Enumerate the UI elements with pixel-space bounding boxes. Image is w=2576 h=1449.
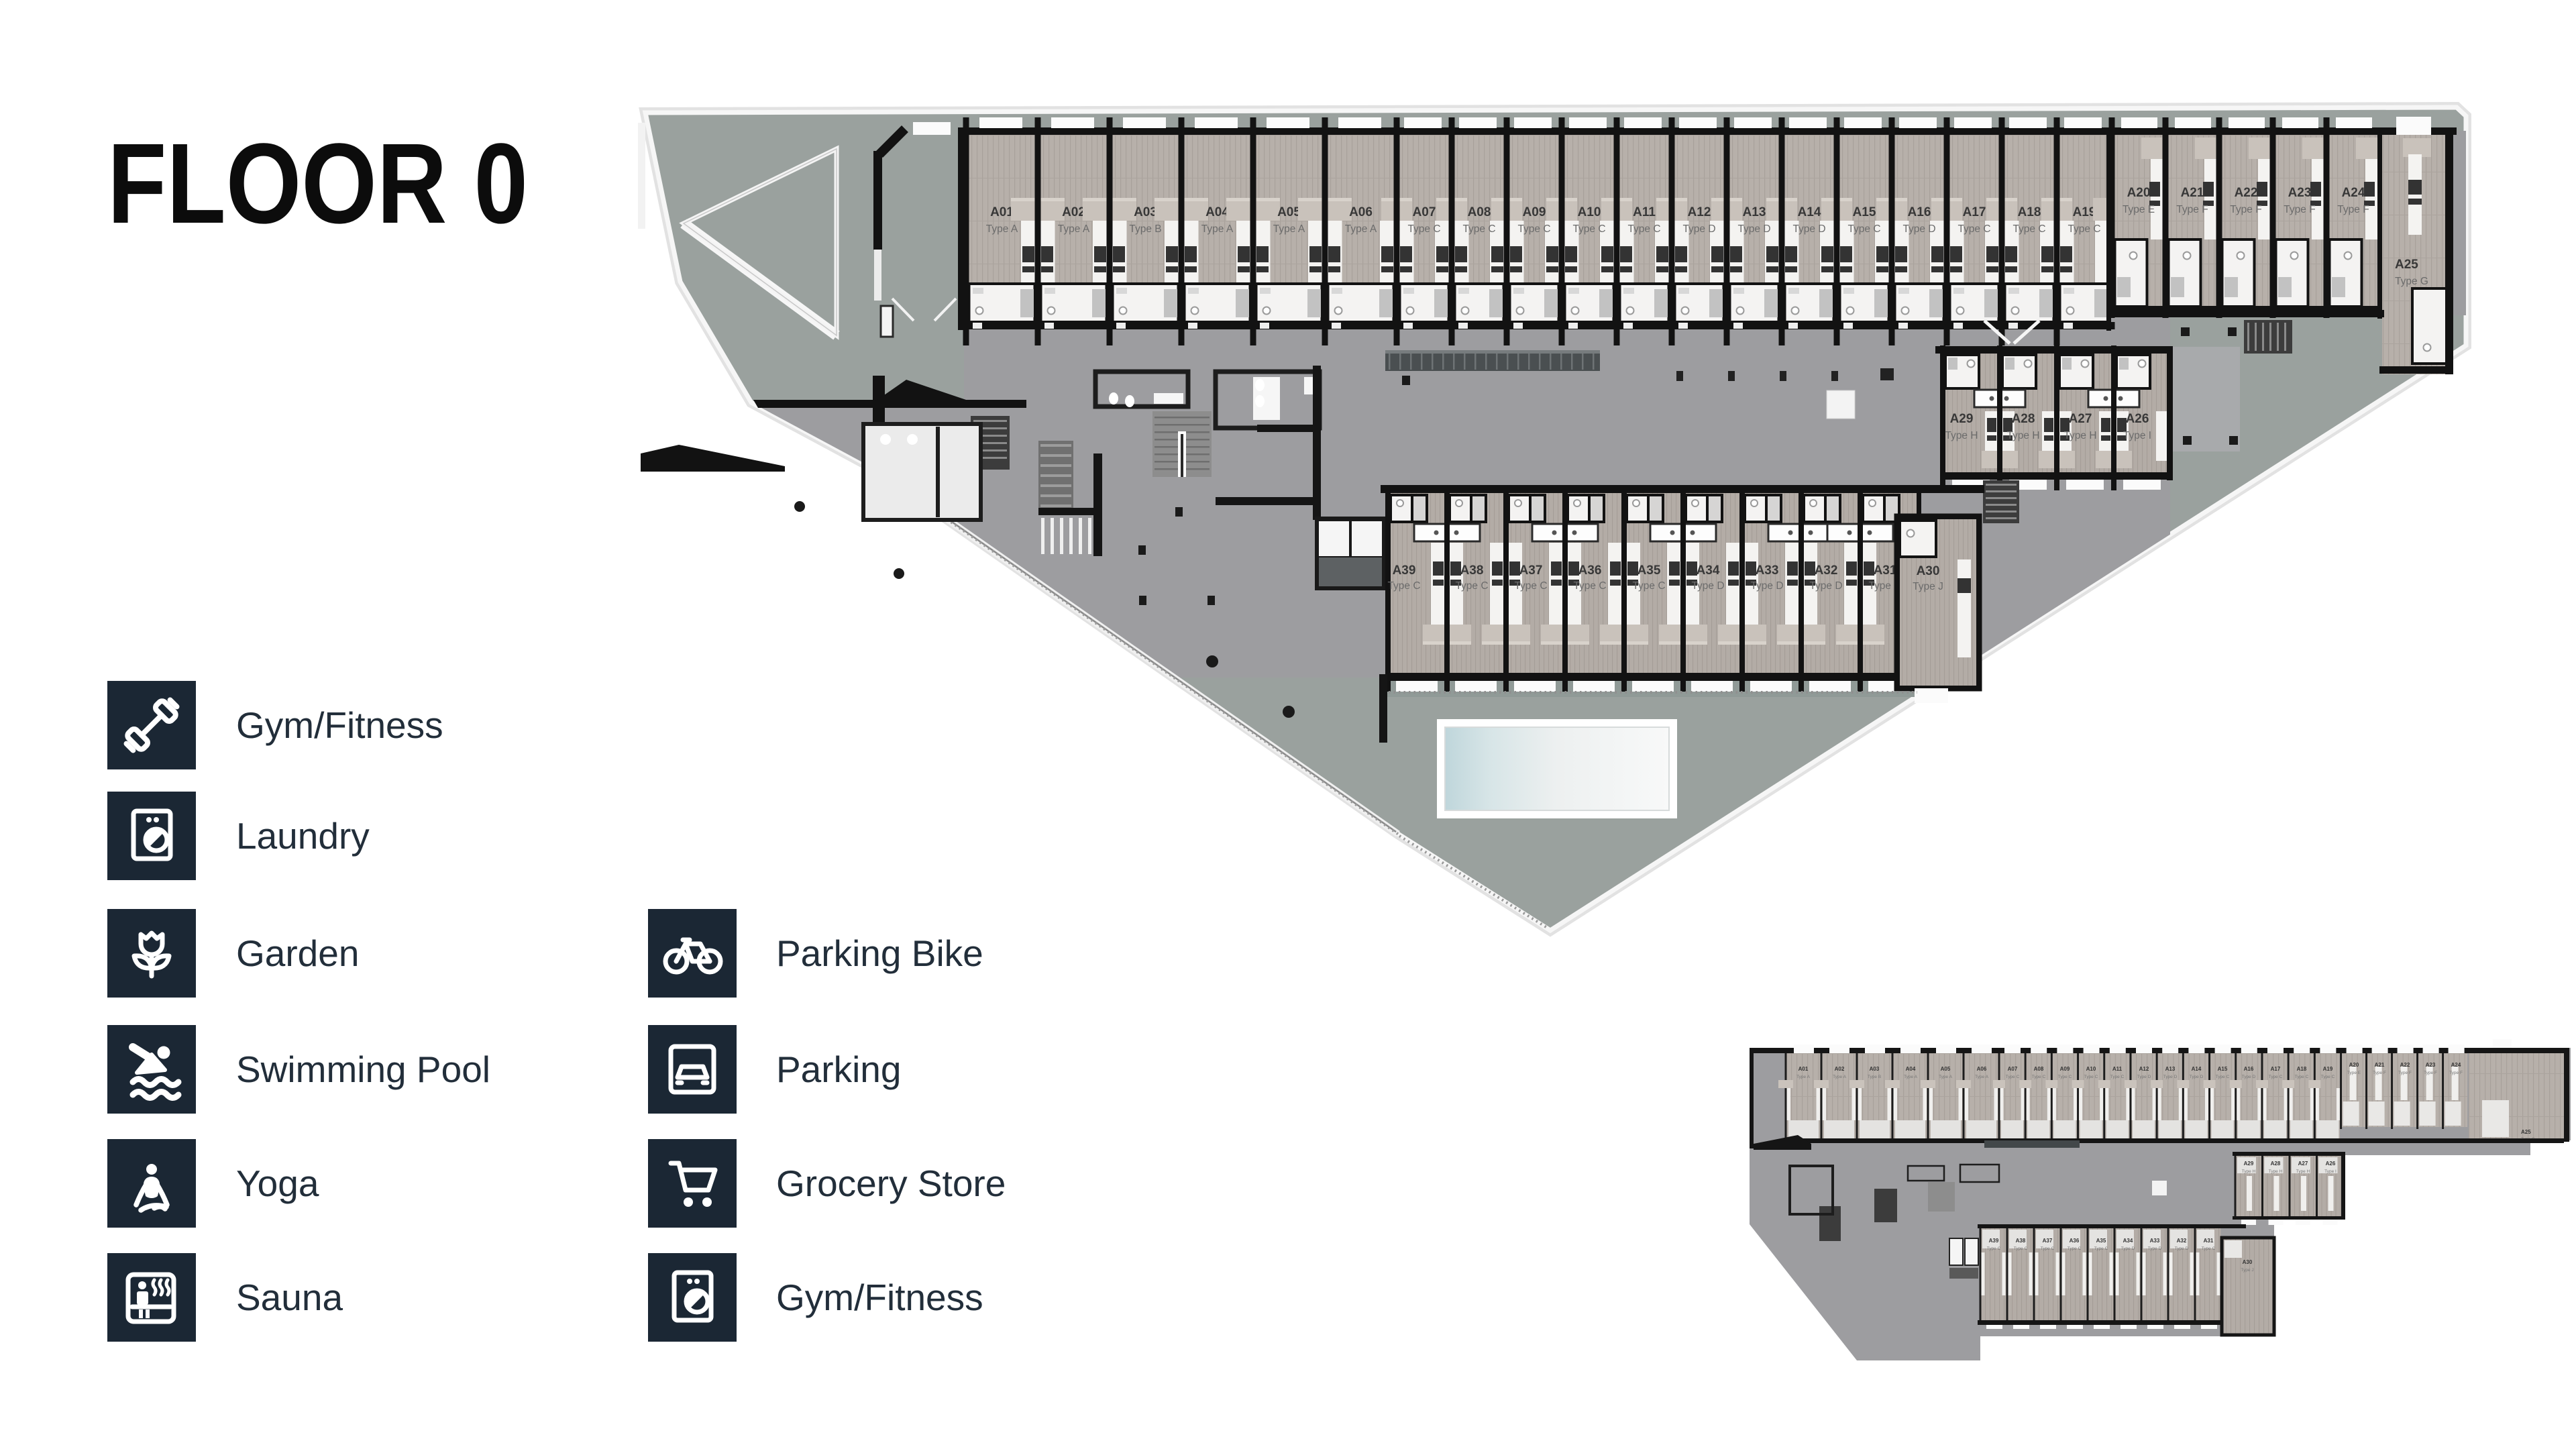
svg-text:Type C: Type C [2216, 1075, 2230, 1079]
svg-text:Type H: Type H [2242, 1169, 2256, 1174]
svg-text:Type A: Type A [1345, 223, 1377, 235]
svg-text:Type F: Type F [2176, 204, 2208, 215]
svg-text:A03: A03 [1134, 205, 1157, 219]
svg-text:Type A: Type A [1796, 1075, 1811, 1079]
svg-text:A38: A38 [2016, 1238, 2026, 1244]
svg-text:Type F: Type F [2373, 1071, 2386, 1075]
svg-text:A32: A32 [2177, 1238, 2187, 1244]
svg-text:A28: A28 [2271, 1161, 2281, 1167]
svg-text:Type C: Type C [2321, 1075, 2335, 1079]
svg-text:Type D: Type D [1691, 580, 1724, 592]
svg-text:Type D: Type D [2137, 1075, 2151, 1079]
svg-text:Type C: Type C [1573, 580, 1606, 592]
svg-text:Type C: Type C [2202, 1246, 2216, 1251]
svg-text:A16: A16 [1908, 205, 1931, 219]
svg-text:Type A: Type A [1904, 1075, 1918, 1079]
svg-text:Type I: Type I [2324, 1169, 2337, 1174]
svg-text:Parking Bike: Parking Bike [776, 932, 983, 974]
svg-text:A25: A25 [2395, 258, 2418, 272]
svg-text:A04: A04 [1906, 1066, 1916, 1072]
svg-text:Type A: Type A [986, 223, 1018, 235]
svg-text:A30: A30 [1917, 564, 1940, 578]
svg-text:A05: A05 [1277, 205, 1301, 219]
svg-text:Type E: Type E [2347, 1071, 2361, 1075]
svg-text:Type D: Type D [1902, 223, 1935, 235]
svg-text:Grocery Store: Grocery Store [776, 1163, 1006, 1204]
svg-text:Type J: Type J [2241, 1268, 2253, 1273]
svg-text:A12: A12 [1688, 205, 1711, 219]
svg-text:A06: A06 [1349, 205, 1373, 219]
svg-text:Gym/Fitness: Gym/Fitness [776, 1277, 983, 1318]
svg-text:A31: A31 [1874, 563, 1897, 578]
svg-text:Garden: Garden [236, 932, 359, 974]
svg-text:A13: A13 [2165, 1066, 2176, 1072]
svg-text:Type C: Type C [1987, 1246, 2001, 1251]
svg-text:A10: A10 [2086, 1066, 2096, 1072]
svg-text:Type D: Type D [2163, 1075, 2178, 1079]
svg-text:A16: A16 [2244, 1066, 2254, 1072]
svg-text:Type C: Type C [2012, 223, 2045, 235]
svg-text:A13: A13 [1743, 205, 1766, 219]
svg-text:A09: A09 [1523, 205, 1546, 219]
svg-text:Parking: Parking [776, 1049, 901, 1090]
svg-text:A33: A33 [2150, 1238, 2160, 1244]
svg-text:Type A: Type A [1273, 223, 1305, 235]
svg-text:A24: A24 [2451, 1062, 2461, 1068]
svg-text:Type H: Type H [2006, 430, 2039, 441]
svg-text:A37: A37 [1519, 563, 1543, 578]
svg-text:A02: A02 [1062, 205, 1085, 219]
svg-text:Type A: Type A [1975, 1075, 1989, 1079]
svg-text:A08: A08 [2034, 1066, 2044, 1072]
svg-text:A33: A33 [1756, 563, 1779, 578]
svg-text:Type H: Type H [2063, 430, 2096, 441]
svg-text:A29: A29 [1950, 412, 1974, 426]
svg-text:Type A: Type A [1201, 223, 1234, 235]
svg-text:A22: A22 [2400, 1062, 2410, 1068]
svg-text:Type C: Type C [1517, 223, 1550, 235]
svg-text:A26: A26 [2126, 412, 2149, 426]
svg-text:Type D: Type D [2190, 1075, 2204, 1079]
svg-text:A18: A18 [2018, 205, 2041, 219]
svg-text:Type D: Type D [1809, 580, 1842, 592]
svg-text:Type C: Type C [2094, 1246, 2108, 1251]
svg-text:A07: A07 [1413, 205, 1436, 219]
svg-text:A25: A25 [2521, 1129, 2531, 1135]
svg-text:Type A: Type A [1833, 1075, 1847, 1079]
svg-text:Type B: Type B [1129, 223, 1161, 235]
svg-text:A21: A21 [2181, 186, 2204, 200]
svg-text:A14: A14 [2192, 1066, 2202, 1072]
svg-text:A11: A11 [2112, 1066, 2123, 1072]
svg-text:A29: A29 [2244, 1161, 2254, 1167]
svg-text:Type I: Type I [2123, 430, 2151, 441]
svg-text:Type C: Type C [1572, 223, 1605, 235]
svg-text:Type F: Type F [2449, 1071, 2463, 1075]
svg-text:A36: A36 [1578, 563, 1602, 578]
svg-text:Type C: Type C [1514, 580, 1547, 592]
svg-text:A06: A06 [1977, 1066, 1987, 1072]
svg-text:Type D: Type D [2148, 1246, 2162, 1251]
svg-text:Type C: Type C [1455, 580, 1488, 592]
svg-text:Type C: Type C [1462, 223, 1495, 235]
svg-text:A32: A32 [1815, 563, 1838, 578]
svg-text:A20: A20 [2127, 186, 2151, 200]
svg-text:A05: A05 [1941, 1066, 1951, 1072]
svg-text:A11: A11 [1633, 205, 1656, 219]
svg-text:A19: A19 [2323, 1066, 2333, 1072]
svg-text:Type D: Type D [1737, 223, 1770, 235]
svg-text:Type H: Type H [1945, 430, 1978, 441]
svg-text:Type E: Type E [2123, 204, 2155, 215]
svg-text:Type J: Type J [1913, 581, 1943, 592]
svg-text:Type D: Type D [1792, 223, 1825, 235]
svg-text:A38: A38 [1460, 563, 1484, 578]
svg-text:Sauna: Sauna [236, 1277, 343, 1318]
svg-text:Type F: Type F [2230, 204, 2261, 215]
svg-text:Type C: Type C [2084, 1075, 2098, 1079]
svg-text:A01: A01 [990, 205, 1014, 219]
svg-text:A27: A27 [2069, 412, 2092, 426]
svg-text:A04: A04 [1205, 205, 1229, 219]
svg-text:Type H: Type H [2269, 1169, 2283, 1174]
svg-text:A10: A10 [1578, 205, 1601, 219]
svg-text:Type C: Type C [2068, 223, 2100, 235]
svg-text:Type C: Type C [2110, 1075, 2125, 1079]
svg-text:A39: A39 [1989, 1238, 1999, 1244]
svg-text:A34: A34 [1697, 563, 1720, 578]
svg-text:A23: A23 [2288, 186, 2312, 200]
svg-text:Type F: Type F [2284, 204, 2315, 215]
svg-text:A31: A31 [2204, 1238, 2214, 1244]
svg-text:FLOOR 0: FLOOR 0 [107, 120, 528, 248]
svg-text:Swimming Pool: Swimming Pool [236, 1049, 490, 1090]
svg-text:A24: A24 [2342, 186, 2365, 200]
svg-text:A14: A14 [1798, 205, 1821, 219]
svg-text:Type C: Type C [1627, 223, 1660, 235]
svg-text:Type C: Type C [2014, 1246, 2028, 1251]
svg-text:Type A: Type A [1058, 223, 1090, 235]
svg-text:A39: A39 [1393, 563, 1416, 578]
svg-text:Type A: Type A [1939, 1075, 1953, 1079]
svg-text:Type D: Type D [1682, 223, 1715, 235]
svg-text:A03: A03 [1870, 1066, 1880, 1072]
svg-text:Type F: Type F [2398, 1071, 2412, 1075]
svg-text:Type H: Type H [2296, 1169, 2310, 1174]
svg-text:Type B: Type B [1868, 1075, 1881, 1079]
svg-text:Type C: Type C [1957, 223, 1990, 235]
svg-text:A15: A15 [2218, 1066, 2228, 1072]
svg-text:Type C: Type C [1407, 223, 1440, 235]
svg-text:Type G: Type G [2395, 276, 2428, 287]
svg-text:A18: A18 [2297, 1066, 2307, 1072]
svg-text:Type C: Type C [2058, 1075, 2072, 1079]
svg-text:A02: A02 [1835, 1066, 1845, 1072]
svg-text:Type C: Type C [2006, 1075, 2020, 1079]
svg-text:A27: A27 [2298, 1161, 2308, 1167]
svg-text:A35: A35 [2096, 1238, 2106, 1244]
svg-text:A37: A37 [2043, 1238, 2053, 1244]
svg-text:Type C: Type C [2068, 1246, 2082, 1251]
svg-text:A35: A35 [1638, 563, 1661, 578]
svg-text:Type D: Type D [2121, 1246, 2135, 1251]
svg-text:A17: A17 [2271, 1066, 2281, 1072]
svg-text:Laundry: Laundry [236, 815, 370, 857]
svg-text:Type C: Type C [2269, 1075, 2283, 1079]
svg-text:A36: A36 [2070, 1238, 2080, 1244]
svg-text:Type C: Type C [2041, 1246, 2055, 1251]
svg-text:A07: A07 [2008, 1066, 2018, 1072]
svg-text:A30: A30 [2243, 1259, 2253, 1265]
svg-text:A34: A34 [2123, 1238, 2133, 1244]
svg-text:A23: A23 [2426, 1062, 2436, 1068]
svg-text:Type F: Type F [2337, 204, 2369, 215]
svg-text:A15: A15 [1853, 205, 1876, 219]
svg-text:Type C: Type C [2295, 1075, 2309, 1079]
svg-text:Type D: Type D [1750, 580, 1783, 592]
svg-text:A26: A26 [2326, 1161, 2336, 1167]
svg-text:A01: A01 [1799, 1066, 1809, 1072]
svg-text:Type C: Type C [1387, 580, 1420, 592]
svg-text:A19: A19 [2073, 205, 2096, 219]
svg-text:A09: A09 [2060, 1066, 2070, 1072]
svg-text:Type C: Type C [1632, 580, 1665, 592]
svg-text:A08: A08 [1468, 205, 1491, 219]
svg-text:A12: A12 [2139, 1066, 2149, 1072]
svg-text:A17: A17 [1963, 205, 1986, 219]
svg-text:Gym/Fitness: Gym/Fitness [236, 704, 443, 746]
svg-text:Type C: Type C [2032, 1075, 2046, 1079]
svg-text:A28: A28 [2012, 412, 2035, 426]
svg-text:Type D: Type D [2175, 1246, 2189, 1251]
svg-text:Type C: Type C [1847, 223, 1880, 235]
svg-text:Type D: Type D [2242, 1075, 2256, 1079]
svg-text:A22: A22 [2235, 186, 2258, 200]
svg-text:A20: A20 [2349, 1062, 2359, 1068]
svg-text:Yoga: Yoga [236, 1163, 319, 1204]
svg-text:A21: A21 [2375, 1062, 2385, 1068]
svg-text:Type F: Type F [2424, 1071, 2437, 1075]
